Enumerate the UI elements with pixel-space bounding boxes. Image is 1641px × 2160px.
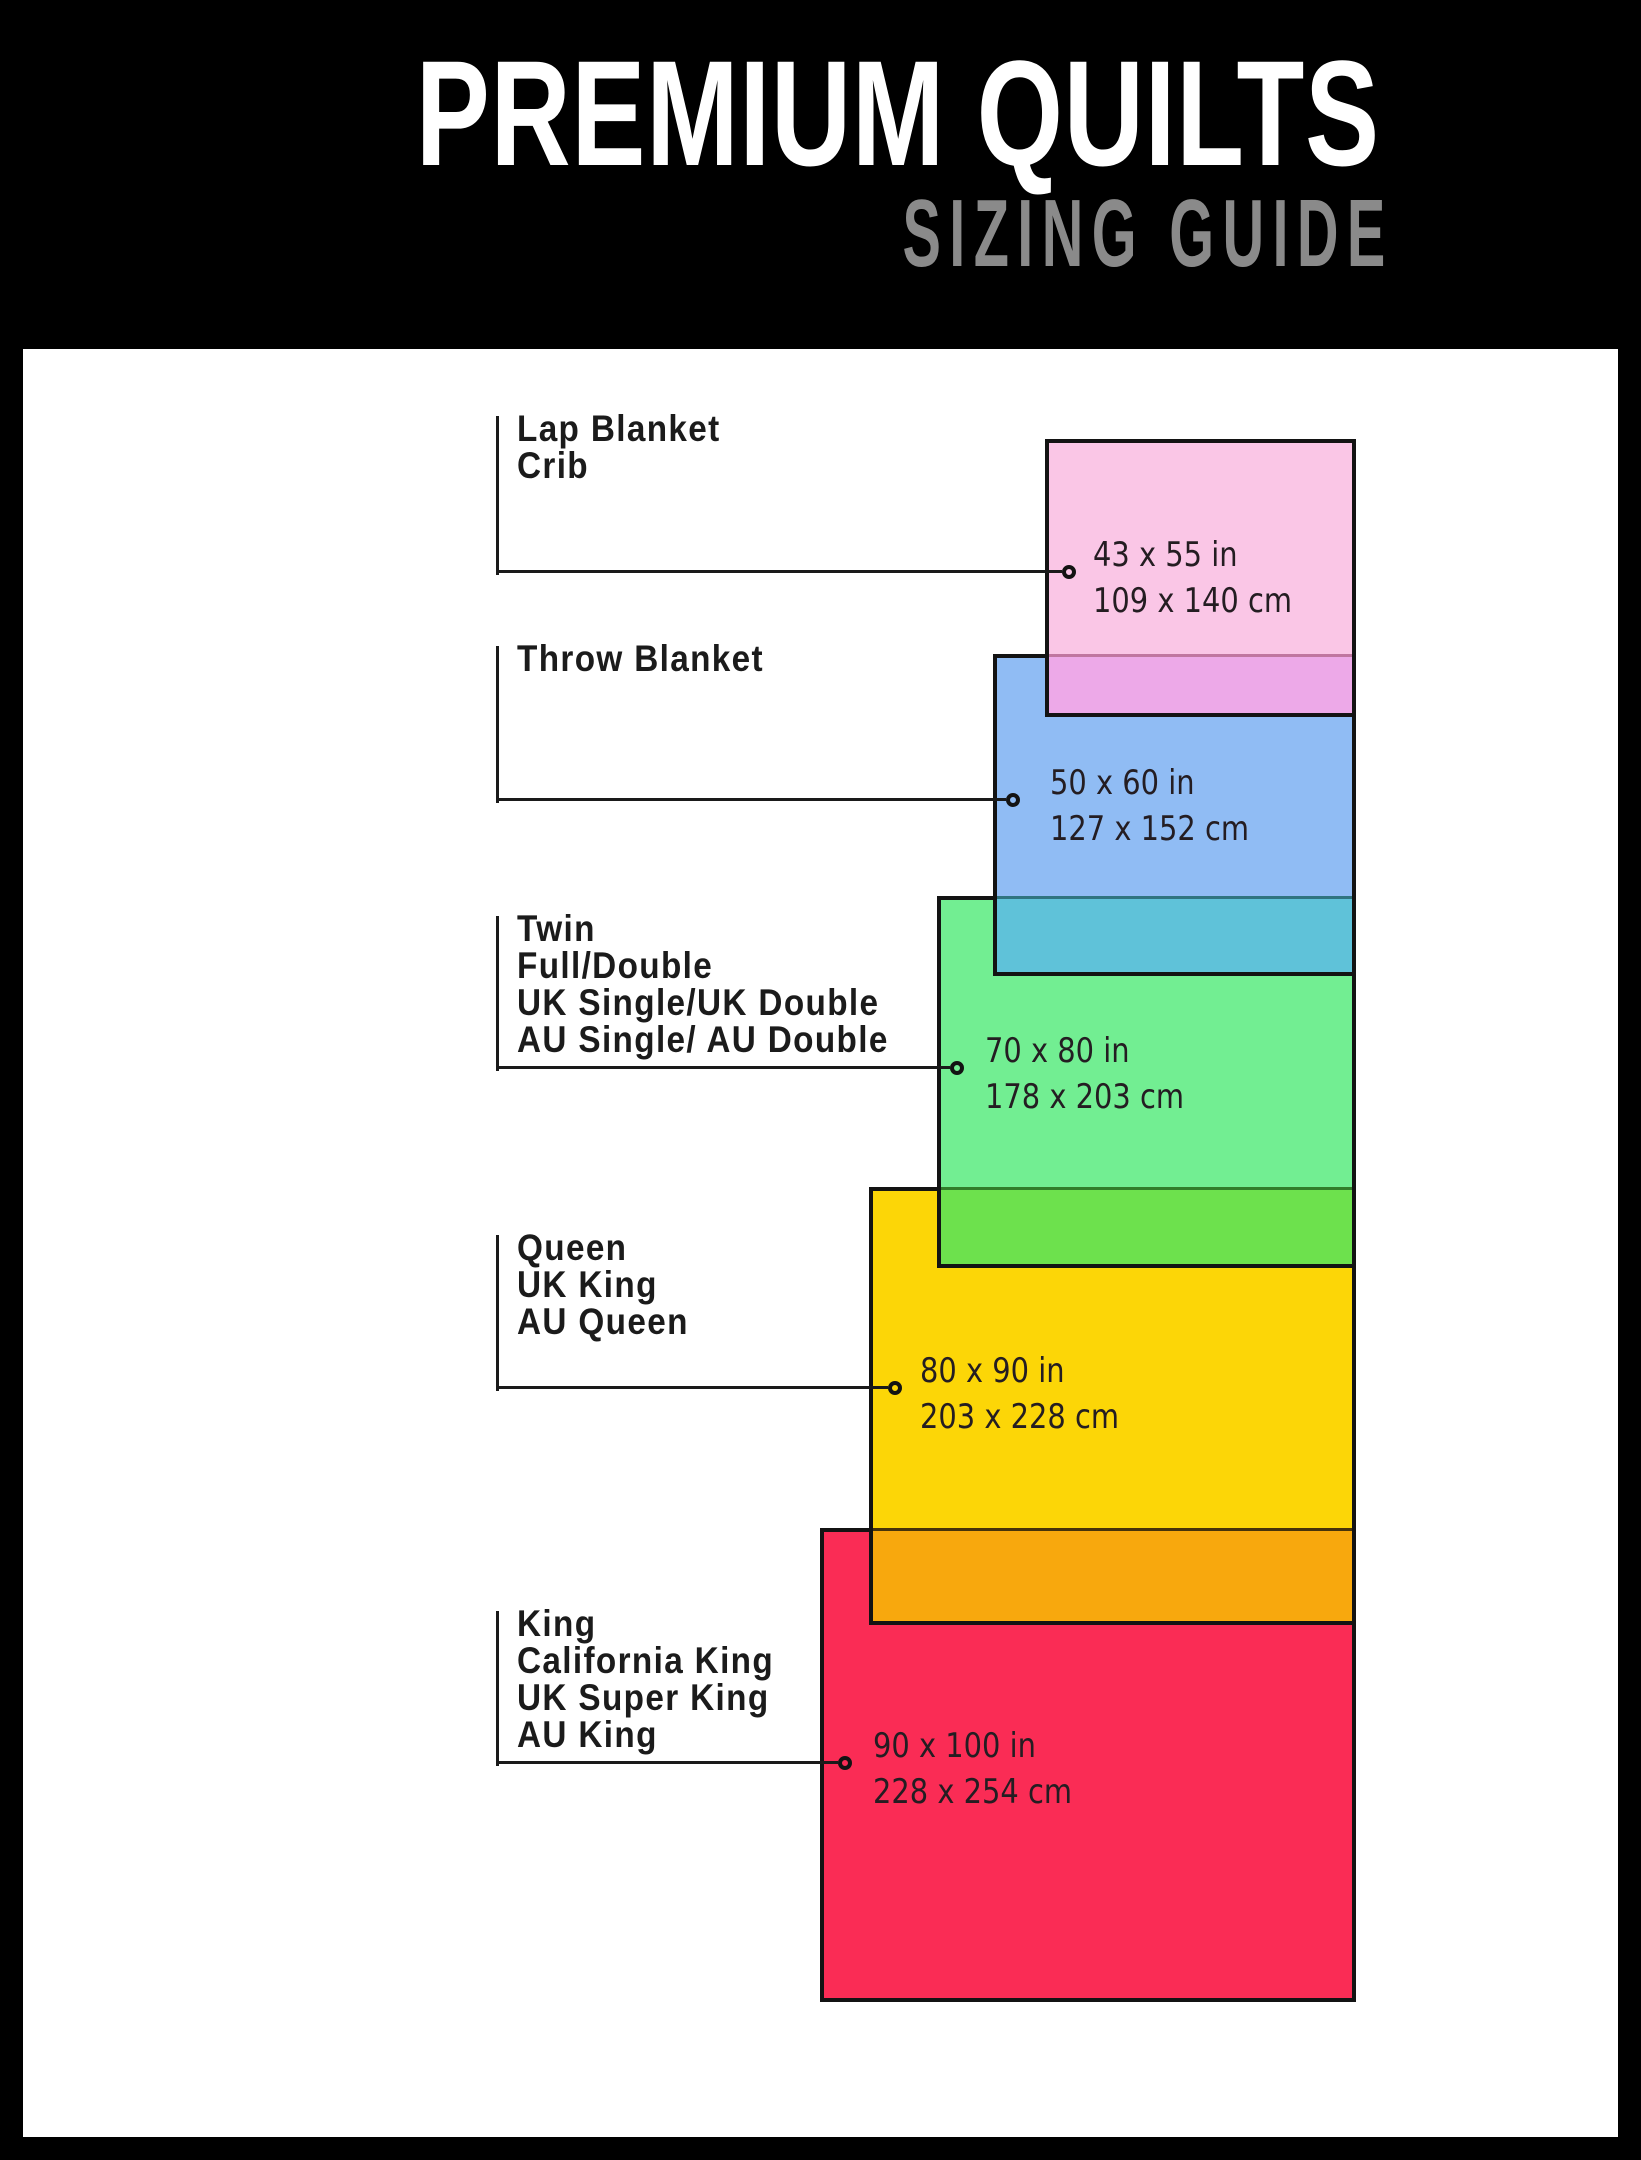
infographic-canvas: PREMIUM QUILTS SIZING GUIDE Lap BlanketC… (0, 0, 1641, 2160)
dimensions-cm-king: 228 x 254 cm (873, 1769, 1072, 1815)
leader-hline-twin-full-double (496, 1066, 950, 1069)
dimensions-king: 90 x 100 in228 x 254 cm (873, 1723, 1072, 1815)
dimensions-in-throw-blanket: 50 x 60 in (1050, 760, 1249, 806)
dimensions-cm-lap-blanket-crib: 109 x 140 cm (1093, 578, 1292, 624)
label-queen: QueenUK KingAU Queen (517, 1229, 689, 1340)
dimensions-in-queen: 80 x 90 in (920, 1348, 1119, 1394)
leader-vline-throw-blanket (496, 646, 499, 803)
leader-vline-twin-full-double (496, 916, 499, 1071)
overlap-queen-king (873, 1528, 1352, 1625)
dimensions-in-twin-full-double: 70 x 80 in (985, 1028, 1184, 1074)
label-line-king-0: King (517, 1605, 774, 1642)
label-line-twin-full-double-2: UK Single/UK Double (517, 984, 889, 1021)
overlap-lap-blanket-crib-throw-blanket (1049, 654, 1352, 717)
dimensions-in-lap-blanket-crib: 43 x 55 in (1093, 532, 1292, 578)
dimensions-queen: 80 x 90 in203 x 228 cm (920, 1348, 1119, 1440)
page-title: PREMIUM QUILTS (416, 38, 1380, 188)
label-line-queen-0: Queen (517, 1229, 689, 1266)
label-lap-blanket-crib: Lap BlanketCrib (517, 410, 721, 484)
dimensions-cm-twin-full-double: 178 x 203 cm (985, 1074, 1184, 1120)
leader-hline-lap-blanket-crib (496, 570, 1062, 573)
dimensions-twin-full-double: 70 x 80 in178 x 203 cm (985, 1028, 1184, 1120)
dimensions-throw-blanket: 50 x 60 in127 x 152 cm (1050, 760, 1249, 852)
label-throw-blanket: Throw Blanket (517, 640, 764, 677)
label-line-twin-full-double-0: Twin (517, 910, 889, 947)
leader-hline-throw-blanket (496, 798, 1006, 801)
label-line-lap-blanket-crib-1: Crib (517, 447, 721, 484)
overlap-throw-blanket-twin-full-double (997, 896, 1352, 976)
leader-vline-lap-blanket-crib (496, 416, 499, 575)
page-subtitle: SIZING GUIDE (903, 186, 1394, 282)
leader-circle-lap-blanket-crib (1062, 565, 1076, 579)
label-line-king-1: California King (517, 1642, 774, 1679)
leader-circle-throw-blanket (1006, 793, 1020, 807)
dimensions-cm-queen: 203 x 228 cm (920, 1394, 1119, 1440)
overlap-twin-full-double-queen (941, 1187, 1352, 1268)
leader-vline-queen (496, 1235, 499, 1391)
label-line-king-2: UK Super King (517, 1679, 774, 1716)
leader-circle-king (838, 1756, 852, 1770)
label-line-queen-2: AU Queen (517, 1303, 689, 1340)
label-king: KingCalifornia KingUK Super KingAU King (517, 1605, 774, 1753)
label-line-lap-blanket-crib-0: Lap Blanket (517, 410, 721, 447)
label-line-throw-blanket-0: Throw Blanket (517, 640, 764, 677)
leader-circle-twin-full-double (950, 1061, 964, 1075)
label-line-king-3: AU King (517, 1716, 774, 1753)
label-line-queen-1: UK King (517, 1266, 689, 1303)
leader-vline-king (496, 1611, 499, 1766)
dimensions-lap-blanket-crib: 43 x 55 in109 x 140 cm (1093, 532, 1292, 624)
leader-hline-queen (496, 1386, 888, 1389)
leader-hline-king (496, 1761, 838, 1764)
label-line-twin-full-double-3: AU Single/ AU Double (517, 1021, 889, 1058)
leader-circle-queen (888, 1381, 902, 1395)
dimensions-cm-throw-blanket: 127 x 152 cm (1050, 806, 1249, 852)
dimensions-in-king: 90 x 100 in (873, 1723, 1072, 1769)
label-line-twin-full-double-1: Full/Double (517, 947, 889, 984)
label-twin-full-double: TwinFull/DoubleUK Single/UK DoubleAU Sin… (517, 910, 889, 1058)
